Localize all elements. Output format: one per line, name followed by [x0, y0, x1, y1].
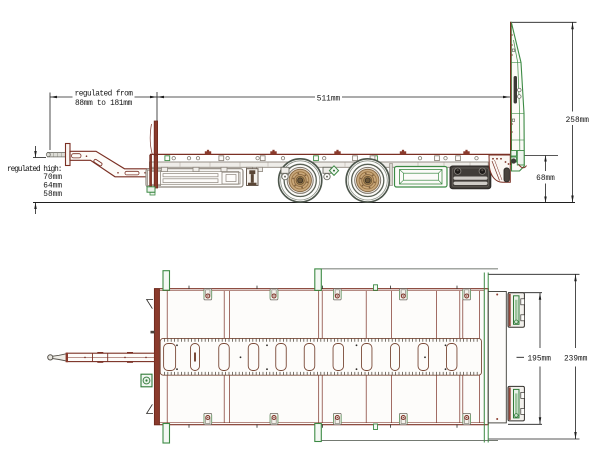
svg-text:64mm: 64mm: [43, 183, 62, 191]
svg-text:239mm: 239mm: [564, 356, 588, 364]
svg-text:88mm to 181mm: 88mm to 181mm: [75, 100, 133, 108]
svg-text:58mm: 58mm: [43, 191, 62, 199]
svg-text:regulated from: regulated from: [75, 91, 134, 99]
svg-text:195mm: 195mm: [528, 356, 552, 364]
svg-text:68mm: 68mm: [536, 175, 555, 183]
svg-text:70mm: 70mm: [43, 174, 62, 182]
svg-text:regulated high:: regulated high:: [7, 166, 61, 174]
svg-text:511mm: 511mm: [317, 96, 341, 104]
svg-text:258mm: 258mm: [566, 117, 590, 125]
